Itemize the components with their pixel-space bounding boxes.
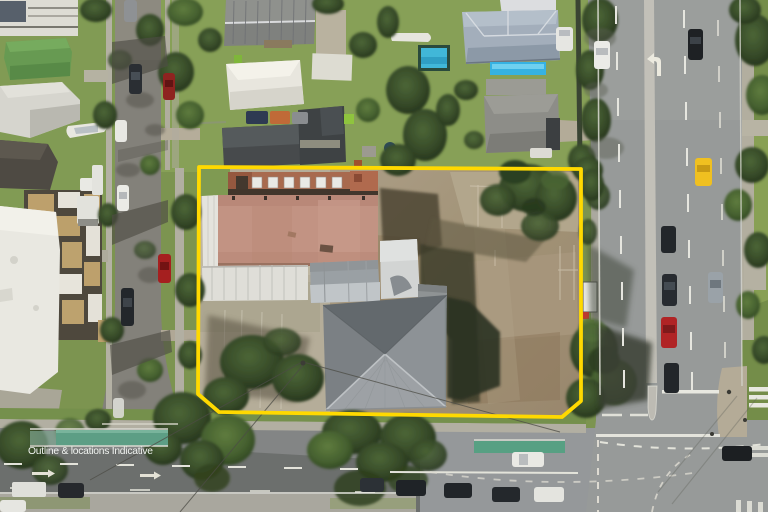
svg-text:Outline & locations Indicative: Outline & locations Indicative xyxy=(28,446,153,457)
